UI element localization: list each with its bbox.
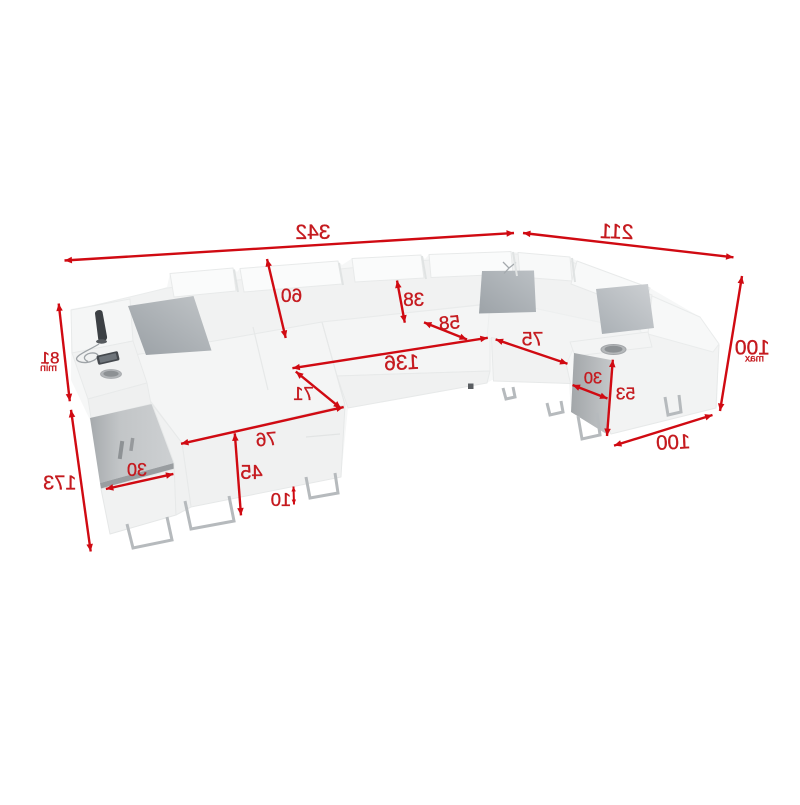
svg-text:min: min (40, 362, 57, 374)
svg-text:342: 342 (295, 221, 330, 244)
svg-text:45: 45 (240, 462, 262, 484)
svg-text:58: 58 (438, 312, 461, 335)
svg-text:75: 75 (522, 329, 544, 351)
svg-text:136: 136 (384, 351, 420, 376)
svg-text:211: 211 (600, 220, 634, 244)
svg-text:30: 30 (127, 460, 147, 480)
svg-text:60: 60 (281, 286, 302, 307)
svg-text:71: 71 (293, 383, 314, 404)
svg-text:38: 38 (403, 290, 424, 311)
svg-text:100: 100 (656, 430, 691, 455)
svg-text:173: 173 (43, 473, 76, 495)
svg-text:30: 30 (584, 370, 602, 388)
svg-text:max: max (745, 354, 764, 365)
svg-text:53: 53 (616, 384, 635, 404)
svg-text:76: 76 (255, 429, 278, 452)
svg-text:10: 10 (271, 489, 292, 510)
